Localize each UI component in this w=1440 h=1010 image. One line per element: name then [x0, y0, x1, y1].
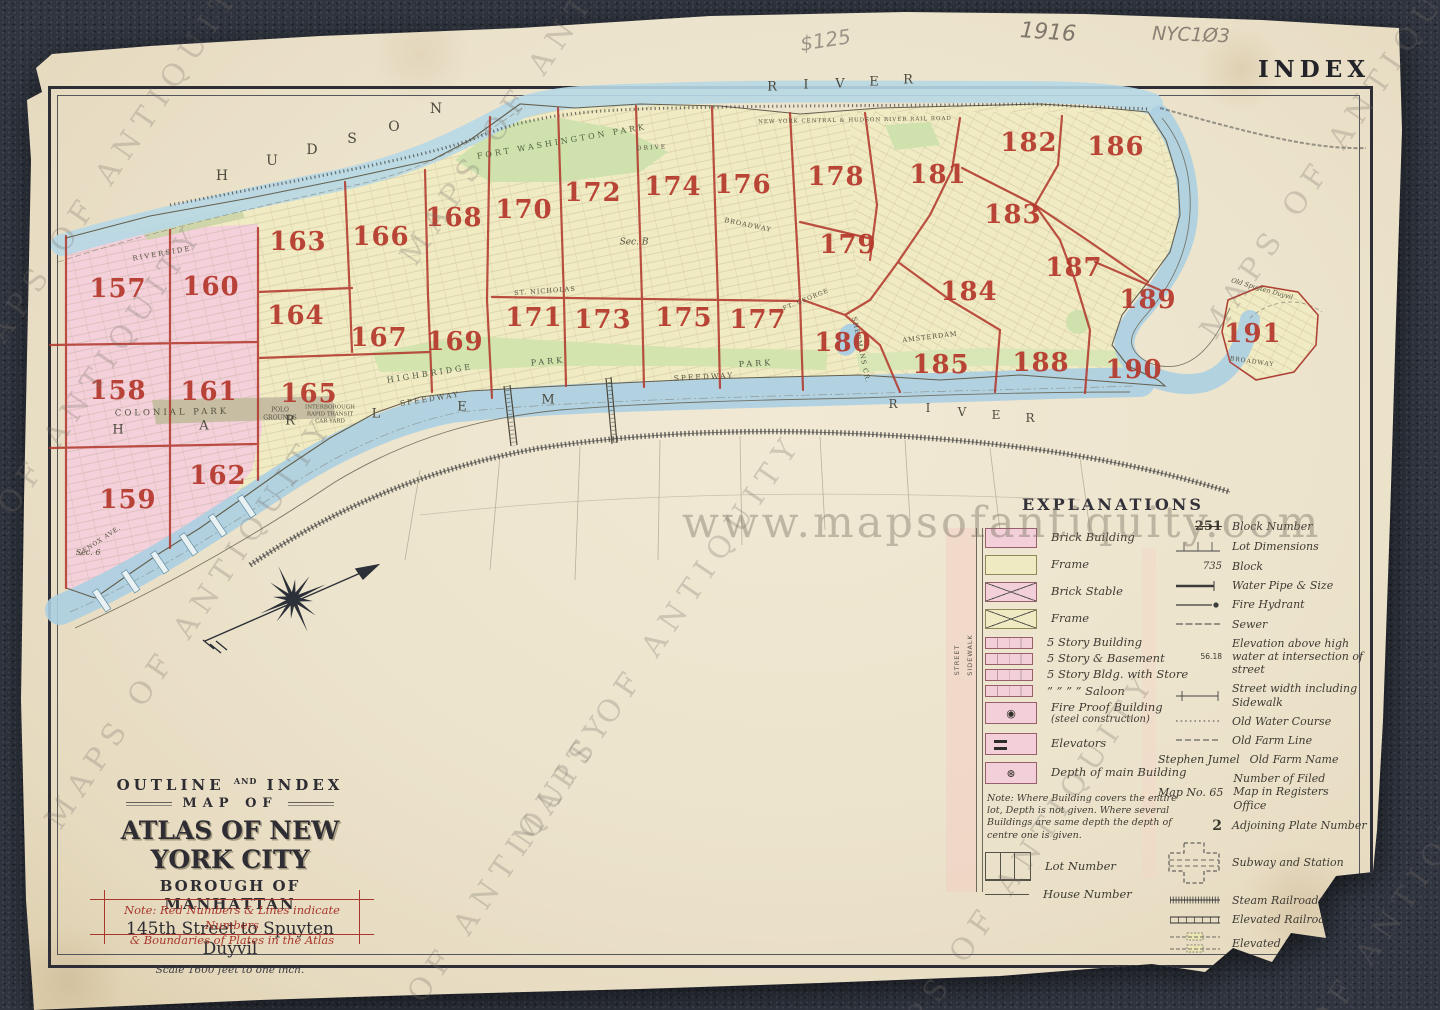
legend-key-script: Stephen Jumel: [1158, 753, 1250, 766]
legend-swatch-pink-x: [985, 582, 1037, 602]
legend-item-label: Brick Stable: [1051, 585, 1123, 598]
legend-key-text: 2: [1212, 818, 1222, 834]
house-number-label: House Number: [1043, 888, 1132, 901]
atlas-sheet: HUDSONRIVERHARLEMRIVER FORT WASHINGTON P…: [0, 0, 1440, 1010]
legend-item-label: Elevation above high water at intersecti…: [1232, 637, 1382, 677]
compass-rose: [203, 565, 378, 653]
legend-item-elevated: Elevated Railroads: [1158, 913, 1390, 926]
legend-swatch-elevators: [985, 733, 1037, 755]
legend-item-label: Subway and Station: [1232, 856, 1344, 869]
legend-swatch-yellow-x: [985, 609, 1037, 629]
note-line-1: Note: Red Numbers & Lines indicate Numbe…: [104, 903, 360, 933]
legend-item-label: Lot Dimensions: [1232, 540, 1319, 553]
title-atlas: ATLAS OF NEW YORK CITY: [96, 816, 364, 874]
paper-shadow-wrap: HUDSONRIVERHARLEMRIVER FORT WASHINGTON P…: [0, 0, 1440, 1010]
legend-item-label: Fire Proof Building(steel construction): [1051, 701, 1163, 726]
legend-item-label: Water Pipe & Size: [1232, 579, 1333, 592]
legend-item-hydrant: Fire Hydrant: [1158, 598, 1390, 611]
legend-item-label: Old Farm Name: [1250, 753, 1339, 766]
legend-swatch-fireproof: ◉: [985, 702, 1037, 724]
legend-key-text: Map No. 65: [1158, 786, 1223, 799]
legend-item-pipe: Water Pipe & Size: [1158, 579, 1390, 592]
red-note-box: Note: Red Numbers & Lines indicate Numbe…: [104, 899, 360, 935]
legend-item-width: Street width including Sidewalk: [1158, 682, 1390, 708]
note-box-line: [90, 934, 374, 935]
title-line-outline-index: OUTLINE AND INDEX: [96, 776, 364, 794]
legend-item-label: Frame: [1051, 612, 1089, 625]
legend-item-elevsta: Elevated Stations: [1158, 932, 1390, 954]
legend-title: EXPLANATIONS: [1018, 495, 1208, 514]
legend-key-dash: [1158, 735, 1232, 745]
legend-item-label: Brick Building: [1051, 531, 1135, 544]
legend-key-elevated: [1158, 914, 1232, 926]
legend-swatch-story: [985, 669, 1033, 681]
handwritten-year: 1916: [1019, 18, 1077, 47]
legend-item-dots: Old Water Course: [1158, 715, 1390, 728]
legend-item-label: 5 Story Building: [1047, 636, 1142, 649]
title-index: INDEX: [267, 776, 344, 794]
legend-item-label: Adjoining Plate Number: [1232, 819, 1367, 832]
legend-key-ticks: [1158, 540, 1232, 554]
legend-swatch-depth: ⊛: [985, 762, 1037, 784]
legend-swatch-story: [985, 685, 1033, 697]
legend-item-sewer: Sewer: [1158, 618, 1390, 631]
legend-street-line: [976, 528, 983, 892]
sidewalk-vertical-label: SIDEWALK: [966, 634, 974, 676]
legend-item-label: Sewer: [1232, 618, 1267, 631]
street-vertical-label: STREET: [953, 645, 961, 676]
legend-key-dots: [1158, 716, 1232, 726]
legend-item-label: Old Water Course: [1232, 715, 1331, 728]
handwritten-catalog-code: NYC1Ø3: [1152, 23, 1231, 48]
legend-item-num: 251Block Number: [1158, 519, 1390, 534]
legend-item-script: Stephen JumelOld Farm Name: [1158, 753, 1390, 766]
legend-key-text: Stephen Jumel: [1158, 753, 1240, 766]
lot-number-diagram: [985, 852, 1031, 881]
legend-swatch-pink: [985, 528, 1037, 548]
legend-item-label: Elevated Railroads: [1232, 913, 1338, 926]
legend-item-dash: Old Farm Line: [1158, 734, 1390, 747]
legend-item-label: Number of Filed Map in Registers Office: [1233, 772, 1353, 812]
legend-item-ticks: Lot Dimensions: [1158, 540, 1390, 554]
legend-item-label: Old Farm Line: [1232, 734, 1312, 747]
park-blob: [1066, 310, 1090, 334]
legend-key-num-sm: 735: [1158, 561, 1232, 572]
legend-item-label: Frame: [1051, 558, 1089, 571]
legend-key-pipe: [1158, 580, 1232, 592]
legend-note: Note: Where Building covers the entire l…: [987, 793, 1179, 842]
index-corner-label: INDEX: [1258, 56, 1370, 83]
house-number-line: [985, 894, 1029, 895]
legend-swatch-story: [985, 637, 1033, 649]
legend-item-label: Block: [1232, 560, 1263, 573]
legend-item-label: Elevators: [1051, 737, 1106, 750]
legend-key-script: Map No. 65: [1158, 786, 1233, 799]
legend-right-column: 251Block NumberLot Dimensions735BlockWat…: [1158, 519, 1390, 960]
legend-key-num-tiny: 56.18: [1158, 652, 1232, 661]
legend-key-elevsta: [1158, 932, 1232, 954]
legend-key-subway: [1158, 840, 1232, 886]
legend-key-steam: [1158, 895, 1232, 905]
note-box-line: [104, 890, 105, 944]
legend-item-label: Block Number: [1232, 520, 1313, 533]
legend-swatch-yellow: [985, 555, 1037, 575]
legend-item-num-tiny: 56.18Elevation above high water at inter…: [1158, 637, 1390, 677]
legend-item-label: Elevated Stations: [1232, 937, 1330, 950]
legend-key-width: [1158, 689, 1232, 703]
legend-item-subway: Subway and Station: [1158, 840, 1390, 886]
compass-north-arrow: [203, 565, 378, 653]
title-and: AND: [234, 776, 257, 786]
legend-key-plate-num: 2: [1158, 818, 1232, 834]
legend-key-text: 251: [1195, 519, 1222, 534]
legend-key-hydrant: [1158, 599, 1232, 611]
legend-item-script: Map No. 65Number of Filed Map in Registe…: [1158, 772, 1390, 812]
title-map-of: MAP OF: [96, 796, 364, 811]
legend-item-label: 5 Story & Basement: [1047, 652, 1165, 665]
legend-street-wash: [946, 528, 976, 892]
legend-item-plate-num: 2Adjoining Plate Number: [1158, 818, 1390, 834]
legend-item-label: ” ” ” ” Saloon: [1047, 685, 1125, 698]
legend-item-sublabel: (steel construction): [1051, 714, 1163, 726]
legend-key-text: 56.18: [1201, 652, 1222, 661]
legend-key-text: 735: [1203, 561, 1222, 572]
legend-item-steam: Steam Railroads: [1158, 894, 1390, 907]
note-box-line: [359, 890, 360, 944]
note-box-line: [90, 899, 374, 900]
title-scale: Scale 1600 feet to one inch.: [96, 964, 364, 976]
kingsbridge-railroad: [1160, 108, 1366, 148]
compass-star: [260, 566, 326, 632]
lot-number-label: Lot Number: [1045, 860, 1116, 873]
legend-key-sewer: [1158, 618, 1232, 630]
legend-item-num-sm: 735Block: [1158, 560, 1390, 573]
note-line-2: & Boundaries of Plates in the Atlas: [104, 933, 360, 948]
title-outline: OUTLINE: [117, 776, 225, 794]
legend-item-label: Fire Hydrant: [1232, 598, 1305, 611]
photo-scene: HUDSONRIVERHARLEMRIVER FORT WASHINGTON P…: [0, 0, 1440, 1010]
legend-item-label: Street width including Sidewalk: [1232, 682, 1390, 708]
legend-item-label: Steam Railroads: [1232, 894, 1324, 907]
legend-swatch-story: [985, 653, 1033, 665]
legend-key-num: 251: [1158, 519, 1232, 534]
